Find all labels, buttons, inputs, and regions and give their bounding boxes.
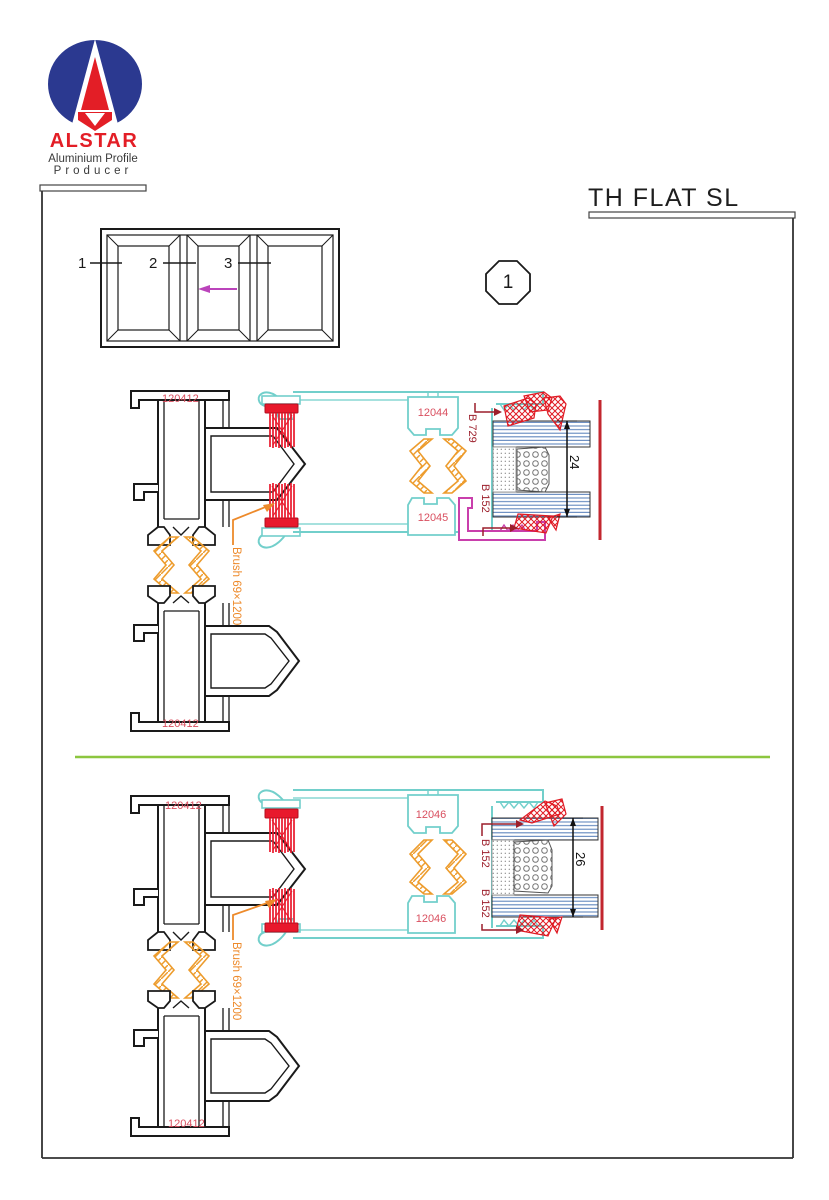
sash-label: 12046	[405, 914, 457, 925]
frame-label: 120412	[162, 394, 199, 405]
sash-thermal-break	[410, 840, 466, 894]
glass-sealant	[492, 840, 514, 895]
sash-label: 12045	[407, 513, 459, 524]
elevation-panel-label-3: 3	[224, 256, 232, 271]
gasket-label: B 729	[466, 414, 477, 443]
elevation-panel-label-1: 1	[78, 256, 86, 271]
glass-unit	[492, 818, 598, 917]
frame-label: 120412	[165, 801, 202, 812]
logo-tagline: Aluminium Profile	[42, 154, 144, 166]
detail-marker-number: 1	[486, 273, 530, 292]
drawing-sheet: ALSTAR Aluminium Profile Producer TH FLA…	[0, 0, 829, 1200]
title-underline	[589, 212, 795, 218]
logo-tagline-2: Producer	[42, 166, 144, 178]
elevation-drawing	[90, 229, 339, 347]
page-title: TH FLAT SL	[588, 186, 740, 211]
detail-1-drawing	[131, 391, 600, 731]
frame-label: 120412	[168, 1119, 205, 1130]
frame-profile	[131, 796, 305, 1136]
glass-dimension-text: 26	[574, 852, 587, 866]
glass-pane-inner	[492, 895, 598, 917]
glass-dimension-text: 24	[568, 455, 581, 469]
frame-label: 120412	[162, 719, 199, 730]
frame-profile	[131, 391, 305, 731]
sash-label: 12044	[407, 408, 459, 419]
glass-pane-inner	[493, 492, 590, 517]
elevation-panel-label-2: 2	[149, 256, 157, 271]
logo-mark	[48, 39, 142, 131]
sash-thermal-break	[410, 439, 466, 493]
drawing-canvas	[0, 0, 829, 1200]
gasket-label: B 152	[479, 889, 490, 918]
glass-sealant	[493, 447, 516, 492]
gasket-label: B 152	[479, 484, 490, 513]
glass-pane-outer	[492, 818, 598, 840]
brush-label: Brush 69×1200	[230, 942, 242, 1020]
logo-brand: ALSTAR	[42, 131, 146, 151]
sash-label: 12046	[405, 810, 457, 821]
glass-spacer	[514, 840, 552, 893]
brush-label: Brush 69×1200	[230, 547, 242, 625]
gasket-label: B 152	[479, 839, 490, 868]
glass-spacer	[517, 447, 549, 492]
detail-2-drawing	[131, 790, 602, 1136]
